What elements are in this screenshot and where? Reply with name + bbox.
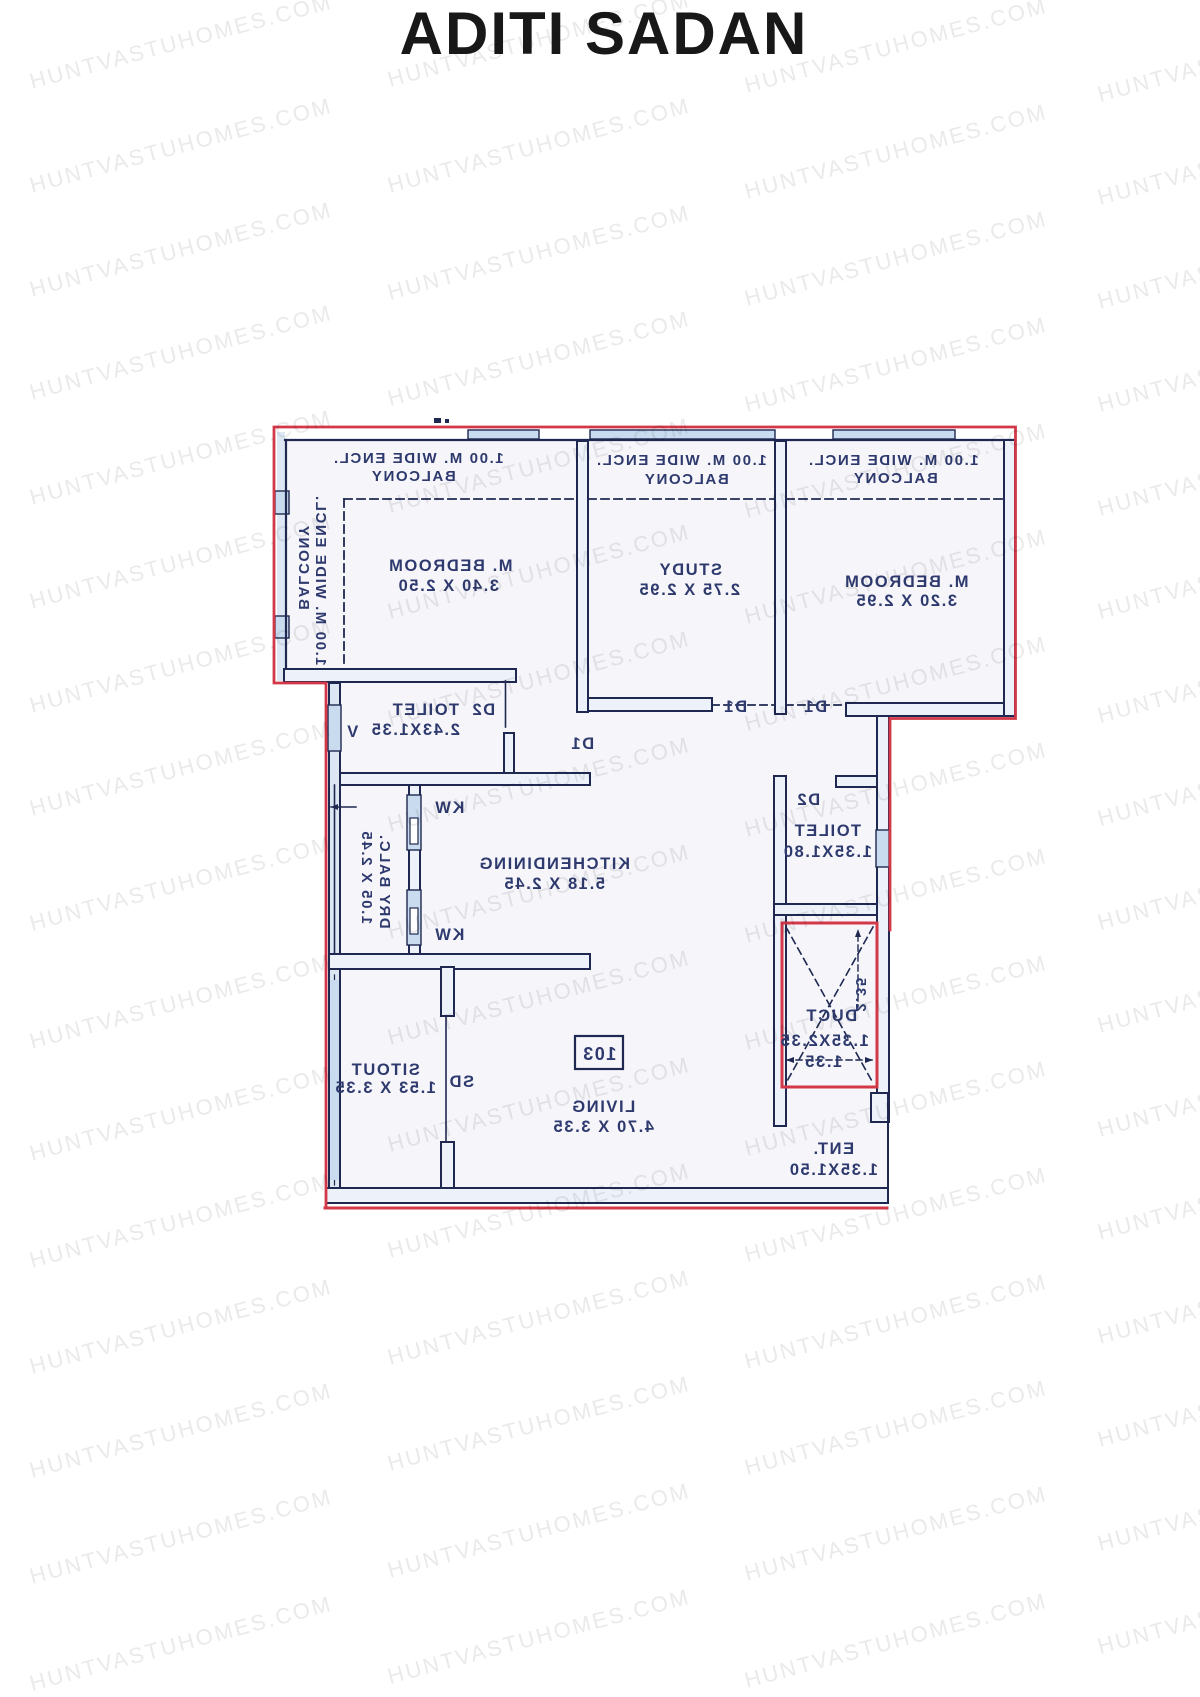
svg-text:HUNTVASTUHOMES.COM: HUNTVASTUHOMES.COM [742,1588,1050,1693]
svg-text:HUNTVASTUHOMES.COM: HUNTVASTUHOMES.COM [742,1481,1050,1586]
svg-text:HUNTVASTUHOMES.COM: HUNTVASTUHOMES.COM [1095,1244,1200,1349]
svg-text:HUNTVASTUHOMES.COM: HUNTVASTUHOMES.COM [27,1061,335,1166]
svg-text:HUNTVASTUHOMES.COM: HUNTVASTUHOMES.COM [1095,1037,1200,1142]
svg-text:D1: D1 [570,735,594,753]
svg-text:HUNTVASTUHOMES.COM: HUNTVASTUHOMES.COM [27,197,335,302]
svg-text:1.35X1.80: 1.35X1.80 [782,843,872,861]
svg-text:HUNTVASTUHOMES.COM: HUNTVASTUHOMES.COM [1095,2,1200,107]
svg-text:1.53 X 3.35: 1.53 X 3.35 [334,1079,436,1097]
svg-text:1.05 X 2.45: 1.05 X 2.45 [358,830,375,924]
svg-text:HUNTVASTUHOMES.COM: HUNTVASTUHOMES.COM [27,831,335,936]
svg-text:HUNTVASTUHOMES.COM: HUNTVASTUHOMES.COM [385,93,693,198]
svg-text:HUNTVASTUHOMES.COM: HUNTVASTUHOMES.COM [1095,416,1200,521]
svg-text:HUNTVASTUHOMES.COM: HUNTVASTUHOMES.COM [1095,1347,1200,1452]
svg-text:1.35: 1.35 [804,1053,843,1071]
svg-text:HUNTVASTUHOMES.COM: HUNTVASTUHOMES.COM [27,1484,335,1589]
svg-text:HUNTVASTUHOMES.COM: HUNTVASTUHOMES.COM [1095,105,1200,210]
svg-text:HUNTVASTUHOMES.COM: HUNTVASTUHOMES.COM [1095,933,1200,1038]
svg-text:HUNTVASTUHOMES.COM: HUNTVASTUHOMES.COM [27,1168,335,1273]
svg-text:HUNTVASTUHOMES.COM: HUNTVASTUHOMES.COM [1095,519,1200,624]
svg-text:2.75 X 2.95: 2.75 X 2.95 [638,581,740,599]
svg-text:V: V [346,723,359,741]
svg-text:HUNTVASTUHOMES.COM: HUNTVASTUHOMES.COM [742,1375,1050,1480]
svg-text:STUDY: STUDY [658,561,722,579]
svg-text:HUNTVASTUHOMES.COM: HUNTVASTUHOMES.COM [1095,830,1200,935]
svg-text:HUNTVASTUHOMES.COM: HUNTVASTUHOMES.COM [27,716,335,821]
svg-text:HUNTVASTUHOMES.COM: HUNTVASTUHOMES.COM [27,0,335,94]
svg-text:HUNTVASTUHOMES.COM: HUNTVASTUHOMES.COM [742,206,1050,311]
svg-text:HUNTVASTUHOMES.COM: HUNTVASTUHOMES.COM [1095,623,1200,728]
svg-text:HUNTVASTUHOMES.COM: HUNTVASTUHOMES.COM [742,1269,1050,1374]
svg-text:1.00 M. WIDE ENCL.: 1.00 M. WIDE ENCL. [332,450,503,467]
svg-text:HUNTVASTUHOMES.COM: HUNTVASTUHOMES.COM [1095,312,1200,417]
svg-text:DRY BALC.: DRY BALC. [376,833,393,928]
svg-text:4.70 X 3.35: 4.70 X 3.35 [552,1118,654,1136]
svg-text:HUNTVASTUHOMES.COM: HUNTVASTUHOMES.COM [385,1478,693,1583]
svg-text:HUNTVASTUHOMES.COM: HUNTVASTUHOMES.COM [1095,1140,1200,1245]
svg-text:HUNTVASTUHOMES.COM: HUNTVASTUHOMES.COM [27,93,335,198]
svg-text:HUNTVASTUHOMES.COM: HUNTVASTUHOMES.COM [385,1265,693,1370]
svg-text:BALCONY: BALCONY [643,471,728,488]
svg-text:HUNTVASTUHOMES.COM: HUNTVASTUHOMES.COM [385,306,693,411]
svg-text:HUNTVASTUHOMES.COM: HUNTVASTUHOMES.COM [1095,726,1200,831]
svg-text:HUNTVASTUHOMES.COM: HUNTVASTUHOMES.COM [27,300,335,405]
svg-text:1.35X1.50: 1.35X1.50 [788,1161,878,1179]
svg-text:HUNTVASTUHOMES.COM: HUNTVASTUHOMES.COM [1095,209,1200,314]
svg-text:HUNTVASTUHOMES.COM: HUNTVASTUHOMES.COM [1095,1657,1200,1697]
svg-text:HUNTVASTUHOMES.COM: HUNTVASTUHOMES.COM [742,99,1050,204]
svg-text:103: 103 [582,1044,617,1064]
svg-text:HUNTVASTUHOMES.COM: HUNTVASTUHOMES.COM [27,949,335,1054]
svg-text:HUNTVASTUHOMES.COM: HUNTVASTUHOMES.COM [27,1591,335,1696]
svg-text:SITOUT: SITOUT [350,1061,420,1079]
svg-text:HUNTVASTUHOMES.COM: HUNTVASTUHOMES.COM [1095,1554,1200,1659]
svg-text:HUNTVASTUHOMES.COM: HUNTVASTUHOMES.COM [1095,1451,1200,1556]
svg-text:SD: SD [448,1073,474,1091]
svg-text:HUNTVASTUHOMES.COM: HUNTVASTUHOMES.COM [27,1274,335,1379]
svg-text:HUNTVASTUHOMES.COM: HUNTVASTUHOMES.COM [27,1378,335,1483]
svg-text:HUNTVASTUHOMES.COM: HUNTVASTUHOMES.COM [385,1371,693,1476]
svg-text:HUNTVASTUHOMES.COM: HUNTVASTUHOMES.COM [385,200,693,305]
svg-text:ENT.: ENT. [812,1140,854,1158]
svg-text:HUNTVASTUHOMES.COM: HUNTVASTUHOMES.COM [742,312,1050,417]
svg-text:HUNTVASTUHOMES.COM: HUNTVASTUHOMES.COM [385,1584,693,1689]
